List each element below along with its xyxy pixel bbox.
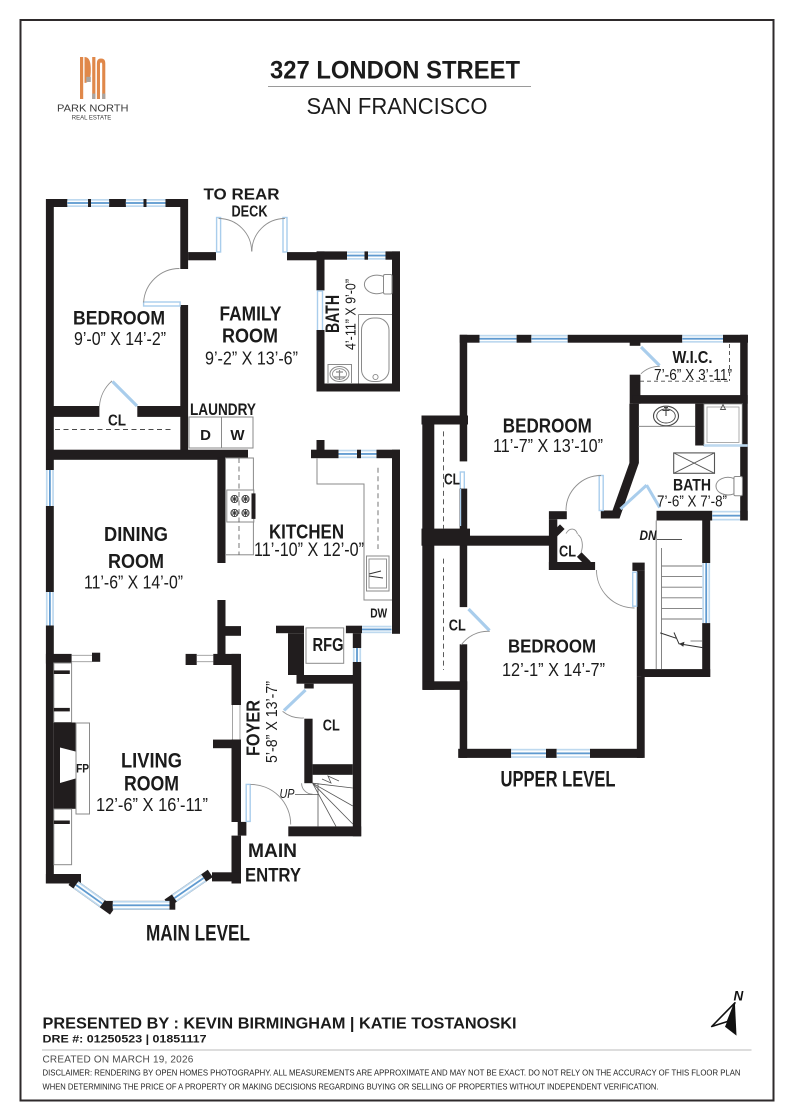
- svg-text:SAN FRANCISCO: SAN FRANCISCO: [307, 93, 488, 119]
- svg-text:BEDROOM: BEDROOM: [73, 308, 165, 330]
- svg-text:9’-2” X 13’-6”: 9’-2” X 13’-6”: [205, 348, 298, 369]
- svg-text:ROOM: ROOM: [108, 550, 164, 573]
- svg-text:5’-8” X 13’-7”: 5’-8” X 13’-7”: [264, 681, 281, 763]
- svg-text:FOYER: FOYER: [243, 700, 263, 756]
- svg-text:ROOM: ROOM: [222, 325, 278, 348]
- svg-text:327 LONDON STREET: 327 LONDON STREET: [270, 57, 520, 85]
- svg-text:CL: CL: [323, 718, 340, 735]
- svg-text:UP: UP: [280, 786, 295, 801]
- svg-text:WHEN DETERMINING THE PRICE OF: WHEN DETERMINING THE PRICE OF A PROPERTY…: [43, 1082, 659, 1092]
- svg-text:N: N: [734, 989, 744, 1004]
- svg-text:CL: CL: [559, 544, 576, 561]
- svg-text:DINING: DINING: [104, 523, 168, 546]
- svg-text:7’-6” X 7’-8”: 7’-6” X 7’-8”: [657, 494, 727, 511]
- svg-text:DRE #: 01250523 | 01851117: DRE #: 01250523 | 01851117: [43, 1034, 207, 1046]
- svg-text:7’-6” X 3’-11”: 7’-6” X 3’-11”: [654, 367, 732, 384]
- svg-text:DN: DN: [640, 528, 657, 543]
- svg-text:CL: CL: [444, 472, 460, 489]
- svg-text:BATH: BATH: [673, 475, 711, 494]
- svg-text:UPPER LEVEL: UPPER LEVEL: [501, 767, 616, 792]
- svg-text:11’-6” X 14’-0”: 11’-6” X 14’-0”: [84, 572, 183, 593]
- svg-text:CREATED ON MARCH 19, 2026: CREATED ON MARCH 19, 2026: [43, 1055, 194, 1066]
- svg-text:RFG: RFG: [313, 635, 344, 655]
- svg-text:DECK: DECK: [232, 204, 269, 221]
- svg-text:12’-6” X 16’-11”: 12’-6” X 16’-11”: [96, 794, 208, 815]
- svg-text:9’-0” X 14’-2”: 9’-0” X 14’-2”: [74, 329, 166, 349]
- svg-text:PRESENTED BY : KEVIN BIRMINGHA: PRESENTED BY : KEVIN BIRMINGHAM | KATIE …: [43, 1016, 517, 1033]
- svg-text:DISCLAIMER: RENDERING BY OPEN: DISCLAIMER: RENDERING BY OPEN HOMES PHOT…: [43, 1068, 741, 1078]
- svg-text:4’-11” X 9’-0”: 4’-11” X 9’-0”: [343, 279, 360, 350]
- svg-text:TO REAR: TO REAR: [204, 187, 280, 204]
- svg-text:MAIN LEVEL: MAIN LEVEL: [146, 920, 250, 945]
- svg-text:PARK NORTH: PARK NORTH: [57, 104, 129, 115]
- svg-text:FAMILY: FAMILY: [220, 302, 282, 325]
- svg-text:W.I.C.: W.I.C.: [673, 347, 713, 367]
- svg-text:D: D: [200, 427, 211, 444]
- svg-text:12’-1” X 14’-7”: 12’-1” X 14’-7”: [502, 659, 605, 680]
- svg-text:LAUNDRY: LAUNDRY: [190, 401, 256, 419]
- svg-text:DW: DW: [370, 606, 388, 621]
- svg-text:ROOM: ROOM: [124, 772, 179, 795]
- svg-text:FP: FP: [76, 763, 89, 775]
- svg-text:CL: CL: [449, 618, 466, 635]
- svg-text:11’-7” X 13’-10”: 11’-7” X 13’-10”: [493, 435, 603, 456]
- svg-text:BEDROOM: BEDROOM: [508, 635, 596, 656]
- svg-text:REAL ESTATE: REAL ESTATE: [72, 114, 112, 121]
- svg-text:BATH: BATH: [322, 295, 344, 333]
- svg-text:LIVING: LIVING: [121, 750, 182, 773]
- svg-text:11’-10” X 12’-0”: 11’-10” X 12’-0”: [254, 540, 364, 561]
- svg-text:ENTRY: ENTRY: [245, 864, 301, 886]
- svg-text:CL: CL: [108, 413, 126, 430]
- svg-text:MAIN: MAIN: [248, 840, 297, 862]
- svg-text:W: W: [230, 427, 245, 444]
